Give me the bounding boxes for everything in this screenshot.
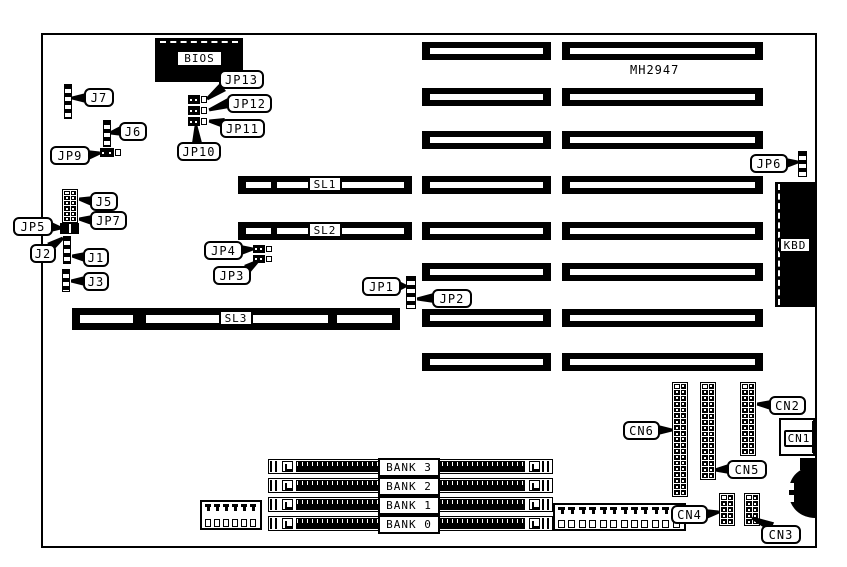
isa-slot-a5 — [422, 222, 551, 240]
jp12-jumper-pin — [201, 107, 207, 114]
pin — [753, 501, 759, 506]
pin — [64, 196, 70, 200]
slot-stripe — [430, 315, 543, 321]
pin — [728, 507, 734, 512]
callout-cn2: CN2 — [769, 396, 806, 415]
pin — [709, 467, 715, 472]
pin-stem — [225, 507, 228, 511]
pin — [674, 431, 680, 436]
j7-header — [64, 84, 72, 119]
isa-slot-a8 — [422, 353, 551, 371]
socket-end — [270, 499, 280, 510]
pin — [64, 191, 70, 195]
jp9-jumper-pin — [115, 149, 121, 156]
pin — [681, 425, 687, 430]
chipset-part-number: MH2947 — [630, 63, 679, 77]
j2-header — [63, 236, 71, 264]
kbd-label: KBD — [779, 237, 811, 253]
pin-stem — [634, 510, 637, 514]
pin — [749, 408, 755, 413]
pin — [702, 384, 708, 389]
pin — [674, 384, 680, 389]
slot-stripe — [570, 269, 755, 275]
pin-stem — [613, 510, 616, 514]
pin — [681, 443, 687, 448]
slot-label-sl3: SL3 — [219, 310, 253, 326]
cn1-connector: CN1 — [779, 418, 815, 456]
pin — [674, 490, 680, 495]
pin-socket — [579, 520, 586, 528]
pin-socket — [250, 519, 256, 527]
socket-end — [270, 480, 280, 491]
pin — [709, 420, 715, 425]
slot-stripe — [246, 228, 271, 234]
slot-stripe — [430, 269, 543, 275]
pin — [709, 437, 715, 442]
pin — [749, 390, 755, 395]
pin — [746, 519, 752, 524]
pin — [721, 501, 727, 506]
pin — [749, 414, 755, 419]
pin — [742, 414, 748, 419]
callout-j7: J7 — [84, 88, 114, 107]
pin — [742, 437, 748, 442]
isa-slot-b4 — [562, 176, 763, 194]
pin — [709, 396, 715, 401]
pin — [681, 437, 687, 442]
pin — [702, 467, 708, 472]
pin — [674, 443, 680, 448]
callout-j6: J6 — [119, 122, 147, 141]
callout-cn6: CN6 — [623, 421, 660, 440]
pin — [742, 408, 748, 413]
pin — [749, 402, 755, 407]
callout-jp12: JP12 — [227, 94, 272, 113]
pin-socket — [214, 519, 220, 527]
pin-stem — [252, 507, 255, 511]
pin — [681, 431, 687, 436]
pin-stem — [603, 510, 606, 514]
pin — [702, 390, 708, 395]
power-connector — [200, 500, 262, 530]
pin — [709, 432, 715, 437]
pin — [674, 461, 680, 466]
jp1-header — [406, 276, 416, 309]
pin — [681, 408, 687, 413]
pin — [64, 201, 70, 205]
jp3-jumper-pin — [266, 256, 272, 262]
pin — [674, 484, 680, 489]
isa-slot-b7 — [562, 309, 763, 327]
pin — [702, 461, 708, 466]
pin-socket — [205, 519, 211, 527]
pin — [721, 495, 727, 500]
isa-slot-b2 — [562, 88, 763, 106]
pin — [709, 402, 715, 407]
bios-dash-line — [160, 41, 238, 43]
pin — [721, 513, 727, 518]
pin — [681, 461, 687, 466]
isa-slot-a3 — [422, 131, 551, 149]
pin — [71, 206, 77, 210]
pin — [674, 413, 680, 418]
pin — [681, 396, 687, 401]
pin — [742, 419, 748, 424]
pin — [674, 478, 680, 483]
socket-end — [270, 518, 280, 529]
socket-end — [270, 461, 280, 472]
pin — [746, 507, 752, 512]
pin — [742, 431, 748, 436]
pin-stem — [207, 507, 210, 511]
jp4-jumper-pin — [266, 246, 272, 252]
pin-stem — [571, 510, 574, 514]
pin — [702, 437, 708, 442]
slot-stripe — [337, 315, 392, 323]
socket-end — [542, 499, 552, 510]
isa-slot-a6 — [422, 263, 551, 281]
pin — [709, 390, 715, 395]
pin — [681, 466, 687, 471]
bank-label: BANK 2 — [378, 477, 440, 496]
pin — [64, 217, 70, 221]
callout-jp3: JP3 — [213, 266, 251, 285]
jp13-jumper-cap — [188, 95, 200, 104]
pin — [674, 408, 680, 413]
pin-socket — [568, 520, 575, 528]
pin — [728, 501, 734, 506]
cn3-header — [744, 493, 760, 526]
callout-j5: J5 — [90, 192, 118, 211]
slot-stripe — [430, 182, 543, 188]
pin — [681, 484, 687, 489]
pin-socket — [652, 520, 659, 528]
pin — [749, 425, 755, 430]
jp3-jumper-cap — [253, 255, 265, 263]
callout-jp7: JP7 — [90, 211, 127, 230]
jp6-header — [798, 151, 807, 177]
pin — [674, 455, 680, 460]
callout-jp13: JP13 — [219, 70, 264, 89]
isa-slot-a4 — [422, 176, 551, 194]
pin — [702, 426, 708, 431]
jp12-jumper-cap — [188, 106, 200, 115]
pin — [702, 455, 708, 460]
callout-jp1: JP1 — [362, 277, 401, 296]
socket-end — [542, 518, 552, 529]
jp11-jumper-pin — [201, 118, 207, 125]
j3-header — [62, 269, 70, 292]
isa-slot-a2 — [422, 88, 551, 106]
pin — [702, 396, 708, 401]
pin — [753, 507, 759, 512]
pin-socket — [621, 520, 628, 528]
slot-stripe — [430, 137, 543, 143]
pin — [728, 513, 734, 518]
pin — [681, 384, 687, 389]
pin — [742, 449, 748, 454]
callout-j2: J2 — [30, 244, 56, 263]
slot-label-sl2: SL2 — [308, 222, 342, 238]
pin — [749, 437, 755, 442]
slot-stripe — [570, 315, 755, 321]
isa-slot-a1 — [422, 42, 551, 60]
slot-stripe — [430, 359, 543, 365]
socket-clip — [282, 480, 293, 491]
pin — [709, 414, 715, 419]
pin — [681, 490, 687, 495]
pin — [742, 402, 748, 407]
pin-socket — [631, 520, 638, 528]
callout-jp4: JP4 — [204, 241, 243, 260]
pin-socket — [241, 519, 247, 527]
pin — [702, 443, 708, 448]
pin — [728, 519, 734, 524]
pin-socket — [641, 520, 648, 528]
socket-clip — [282, 499, 293, 510]
pin-stem — [644, 510, 647, 514]
jp4-jumper-cap — [253, 245, 265, 253]
callout-j1: J1 — [83, 248, 109, 267]
pin — [702, 432, 708, 437]
pin — [702, 414, 708, 419]
socket-clip — [282, 518, 293, 529]
socket-clip — [529, 480, 540, 491]
pin — [71, 201, 77, 205]
pin — [71, 191, 77, 195]
socket-clip — [529, 518, 540, 529]
bank-label: BANK 3 — [378, 458, 440, 477]
jp5-jumper — [60, 223, 79, 234]
pin — [674, 437, 680, 442]
pin — [742, 384, 748, 389]
slot-stripe — [430, 48, 543, 54]
pin — [749, 431, 755, 436]
pin-socket — [600, 520, 607, 528]
pin — [709, 384, 715, 389]
pin — [742, 425, 748, 430]
jp13-jumper-pin — [201, 96, 207, 103]
pin-stem — [665, 510, 668, 514]
pin-stem — [561, 510, 564, 514]
slot-stripe — [570, 48, 755, 54]
pin-socket — [232, 519, 238, 527]
slot-label-sl1: SL1 — [308, 176, 342, 192]
pin — [709, 455, 715, 460]
pin — [681, 455, 687, 460]
pin — [674, 466, 680, 471]
pin — [742, 390, 748, 395]
pin — [709, 473, 715, 478]
bank-label: BANK 0 — [378, 515, 440, 534]
pin — [674, 419, 680, 424]
pin-stem — [592, 510, 595, 514]
callout-jp11: JP11 — [220, 119, 265, 138]
socket-end — [542, 480, 552, 491]
pin — [702, 420, 708, 425]
pin — [674, 390, 680, 395]
isa-slot-a7 — [422, 309, 551, 327]
pin — [749, 443, 755, 448]
bios-label: BIOS — [176, 50, 223, 67]
pin — [721, 507, 727, 512]
socket-clip — [282, 461, 293, 472]
pin — [742, 396, 748, 401]
pin — [681, 449, 687, 454]
pin — [674, 396, 680, 401]
callout-jp6: JP6 — [750, 154, 788, 173]
cn2-header — [740, 382, 756, 456]
motherboard-diagram: SL1SL2SL3BIOSKBDCN1BANK 3BANK 2BANK 1BAN… — [0, 0, 847, 567]
pin-stem — [243, 507, 246, 511]
pin — [674, 402, 680, 407]
jp11-jumper-cap — [188, 117, 200, 126]
pin — [64, 212, 70, 216]
callout-jp5: JP5 — [13, 217, 53, 236]
pin — [742, 443, 748, 448]
socket-clip — [529, 499, 540, 510]
slot-stripe — [570, 94, 755, 100]
pin — [702, 449, 708, 454]
isa-slot-b6 — [562, 263, 763, 281]
j5-jp7-block — [62, 189, 78, 223]
j6-header — [103, 120, 111, 147]
callout-cn5: CN5 — [727, 460, 767, 479]
pin — [702, 402, 708, 407]
socket-clip — [529, 461, 540, 472]
pin — [709, 408, 715, 413]
pin-socket — [589, 520, 596, 528]
pin — [674, 425, 680, 430]
pin — [709, 443, 715, 448]
pin — [753, 513, 759, 518]
din-notch — [789, 483, 794, 490]
pin — [681, 413, 687, 418]
callout-j3: J3 — [83, 272, 109, 291]
pin — [728, 495, 734, 500]
pin — [753, 495, 759, 500]
pin — [709, 449, 715, 454]
pin — [681, 478, 687, 483]
callout-jp10: JP10 — [177, 142, 221, 161]
pin-stem — [624, 510, 627, 514]
pin — [674, 472, 680, 477]
pin — [746, 513, 752, 518]
slot-stripe — [570, 137, 755, 143]
slot-stripe — [430, 228, 543, 234]
slot-stripe — [570, 359, 755, 365]
slot-stripe — [80, 315, 133, 323]
pin — [71, 212, 77, 216]
pin — [753, 519, 759, 524]
callout-cn4: CN4 — [671, 505, 708, 524]
slot-stripe — [570, 228, 755, 234]
isa-slot-b8 — [562, 353, 763, 371]
keyboard-connector: KBD — [775, 182, 817, 307]
pin — [749, 419, 755, 424]
pin — [749, 384, 755, 389]
isa-slot-b5 — [562, 222, 763, 240]
pin — [71, 217, 77, 221]
cn1-label: CN1 — [784, 430, 814, 447]
pin — [681, 402, 687, 407]
pin — [746, 501, 752, 506]
callout-cn3: CN3 — [761, 525, 801, 544]
pin — [71, 196, 77, 200]
isa-slot-b1 — [562, 42, 763, 60]
pin — [746, 495, 752, 500]
pin — [702, 408, 708, 413]
jp9-jumper-cap — [100, 148, 114, 157]
pin-stem — [234, 507, 237, 511]
cn4-header — [719, 493, 735, 526]
pin — [681, 390, 687, 395]
pin — [749, 396, 755, 401]
pin — [681, 472, 687, 477]
pin — [64, 206, 70, 210]
din-notch — [789, 495, 794, 502]
slot-stripe — [430, 94, 543, 100]
pin — [721, 519, 727, 524]
socket-end — [542, 461, 552, 472]
pin-socket — [558, 520, 565, 528]
pin-stem — [582, 510, 585, 514]
pin-stem — [655, 510, 658, 514]
bank-label: BANK 1 — [378, 496, 440, 515]
pin — [674, 449, 680, 454]
pin — [702, 473, 708, 478]
pin — [709, 461, 715, 466]
slot-stripe — [570, 182, 755, 188]
cn5-header — [700, 382, 716, 480]
pin-socket — [662, 520, 669, 528]
pin — [709, 426, 715, 431]
jp5-jumper-slit — [69, 224, 71, 233]
pin — [681, 419, 687, 424]
pin-socket — [223, 519, 229, 527]
pin-socket — [610, 520, 617, 528]
callout-jp9: JP9 — [50, 146, 90, 165]
aux-pin-connector — [553, 503, 686, 531]
isa-slot-b3 — [562, 131, 763, 149]
pin — [749, 449, 755, 454]
slot-stripe — [246, 182, 271, 188]
cn6-header — [672, 382, 688, 497]
pin-stem — [216, 507, 219, 511]
callout-jp2: JP2 — [432, 289, 472, 308]
